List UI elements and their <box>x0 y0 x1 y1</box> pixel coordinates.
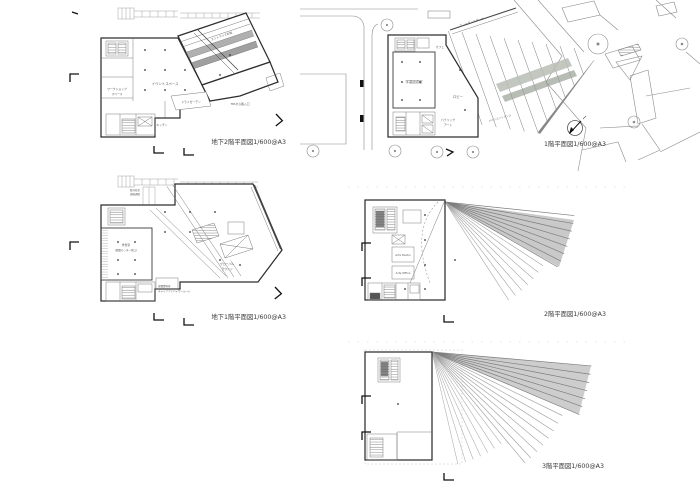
drawing-sheet: イベントスペース ワークショップ スペース ドライガーデン TPAから搬入口 キ… <box>0 0 700 495</box>
f3-caption: 3階平面図1/600@A3 <box>542 461 604 470</box>
b2-label-kitchen: キッチン <box>156 123 167 127</box>
f1-label-lobby: ロビー <box>453 94 464 99</box>
plan-b1: 学習室 (図書センター窓口) グローバル ラウンジ 就職資料室 キャリアアドバイ… <box>70 176 293 325</box>
b1-label-study-1: 学習室 <box>122 243 131 247</box>
b1-label-career-2: キャリアアドバイザールーム <box>158 289 191 293</box>
b2-label-workshop-1: ワークショップ <box>107 87 127 91</box>
section-marker-icon <box>446 149 453 156</box>
plan-1f: 学習図書室 ロビー カフェ パブリック アート エントランスポーチ メインエント… <box>300 0 700 171</box>
f1-crosswalk-mark <box>360 115 364 122</box>
f1-label-cafe: カフェ <box>436 45 445 49</box>
b1-label-lounge-1: グローバル <box>220 262 234 266</box>
b1-label-bridge-1: 既存校舎 <box>130 188 141 192</box>
f1-label-public-art-1: パブリック <box>441 118 455 122</box>
b1-label-bridge-2: 連絡通路 <box>130 192 141 196</box>
b2-label-dry-garden: ドライガーデン <box>181 100 201 104</box>
f1-crosswalk-mark <box>360 80 364 87</box>
f1-label-library: 学習図書室 <box>406 79 424 84</box>
b1-label-study-2: (図書センター窓口) <box>115 248 137 252</box>
b1-caption: 地下1階平面図1/600@A3 <box>211 312 286 321</box>
f1-label-public-art-2: アート <box>444 123 452 127</box>
b1-label-career-1: 就職資料室 <box>158 284 171 288</box>
f1-caption: 1階平面図1/600@A3 <box>544 139 606 148</box>
f1-label-porch: エントランスポーチ <box>459 16 484 27</box>
f2-label-arts-office: Arts Office <box>396 271 411 275</box>
f2-label-arts-studio: Arts Studio <box>395 253 411 257</box>
f2-caption: 2階平面図1/600@A3 <box>544 309 606 318</box>
f3-roof-wedge <box>432 352 591 414</box>
b2-label-workshop-2: スペース <box>112 92 123 96</box>
b1-label-lounge-2: ラウンジ <box>221 267 232 271</box>
north-arrow-icon <box>568 116 587 136</box>
plan-2f: Arts Studio Arts Office 2階平面図1/600@A3 <box>348 187 632 322</box>
plans-canvas: イベントスペース ワークショップ スペース ドライガーデン TPAから搬入口 キ… <box>0 0 700 495</box>
plan-3f: 3階平面図1/600@A3 <box>348 342 632 480</box>
b2-label-event-space: イベントスペース <box>152 81 179 86</box>
f3-column <box>397 403 399 405</box>
b2-label-tpa-dock: TPAから搬入口 <box>229 102 249 106</box>
plan-b2: イベントスペース ワークショップ スペース ドライガーデン TPAから搬入口 キ… <box>70 8 286 155</box>
b2-caption: 地下2階平面図1/600@A3 <box>211 137 286 146</box>
